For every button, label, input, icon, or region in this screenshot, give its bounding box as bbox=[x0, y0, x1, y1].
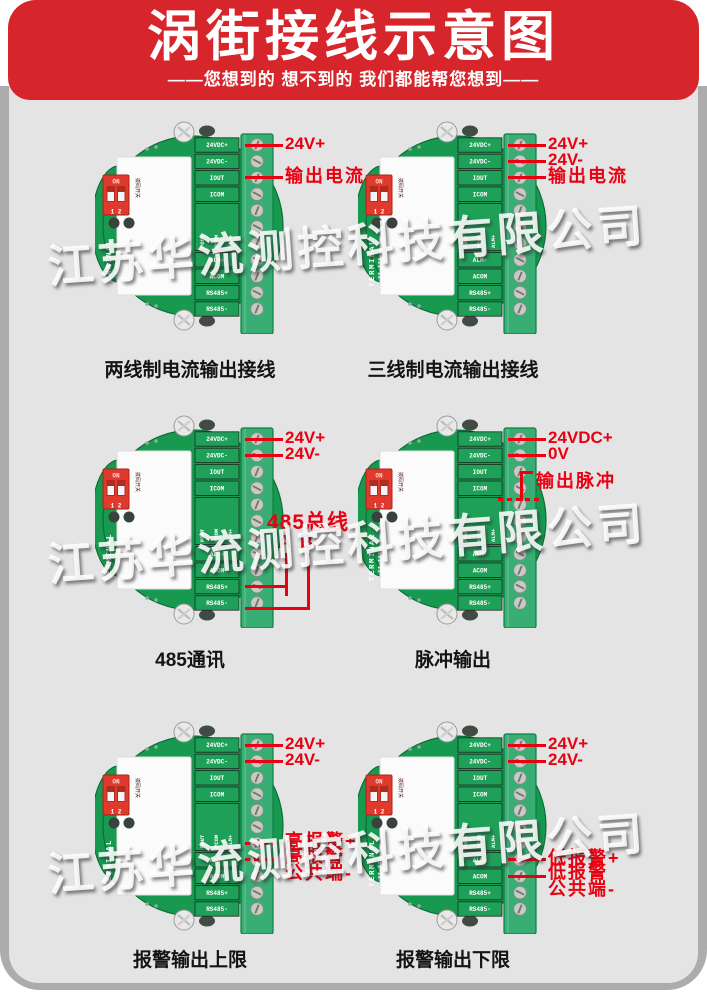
terminal-screw bbox=[251, 772, 264, 785]
terminal-screw bbox=[514, 821, 527, 834]
board-cell: ON1 2拨码开关TERMINALII-III24VDC+24VDC-IOUTI… bbox=[353, 408, 698, 714]
board-cell: ON1 2拨码开关TERMINALII-III24VDC+24VDC-IOUTI… bbox=[9, 714, 353, 990]
terminal-screw bbox=[514, 837, 527, 850]
mount-hole bbox=[387, 218, 398, 229]
pulse-label: 输出脉冲 bbox=[536, 473, 616, 490]
wire-label: 24V+ bbox=[285, 135, 325, 152]
terminal-label: IOUT bbox=[210, 775, 225, 782]
dip-on-label: ON bbox=[375, 779, 383, 786]
terminal-label: ALM- bbox=[210, 257, 224, 264]
terminal-screw bbox=[251, 804, 264, 817]
terminal-label: IOUT bbox=[473, 469, 488, 476]
wire-line bbox=[508, 176, 546, 179]
terminal-screw bbox=[251, 870, 264, 883]
page-title: 涡街接线示意图 bbox=[8, 6, 699, 68]
dip-positions-label: 1 2 bbox=[374, 809, 385, 816]
mount-hole bbox=[124, 818, 135, 829]
terminal-screw bbox=[251, 221, 264, 234]
terminal-label: ACOM bbox=[210, 567, 225, 574]
terminal-screw bbox=[514, 254, 527, 267]
terminal-label: ALM- bbox=[473, 257, 487, 264]
page: 涡街接线示意图 ——您想到的 想不到的 我们都能帮您想到—— ON1 2拨码开关… bbox=[0, 0, 707, 1000]
wire-line bbox=[508, 160, 546, 163]
wire-label: 输出电流 bbox=[548, 168, 628, 185]
terminal-screw bbox=[514, 597, 527, 610]
mount-screw bbox=[174, 604, 194, 624]
terminal-label: ICOM bbox=[210, 485, 225, 492]
mount-screw bbox=[174, 122, 194, 142]
terminal-label: 24VDC- bbox=[206, 453, 228, 460]
terminal-screw bbox=[251, 903, 264, 916]
terminal-screw bbox=[251, 237, 264, 250]
terminal-label: PCOM bbox=[476, 234, 483, 248]
terminal-label: ICOM bbox=[473, 191, 488, 198]
terminal-label: 24VDC- bbox=[206, 759, 228, 766]
wire-line bbox=[245, 842, 283, 845]
terminal-label: PCOM bbox=[213, 234, 220, 248]
terminal-screw bbox=[251, 254, 264, 267]
terminal-label: RS485- bbox=[469, 306, 491, 313]
mount-hole bbox=[109, 218, 120, 229]
terminal-screw bbox=[251, 155, 264, 168]
dip-side-label: 拨码开关 bbox=[397, 178, 404, 198]
bus-wire-b bbox=[307, 553, 310, 610]
mount-hole bbox=[124, 512, 135, 523]
terminal-screw bbox=[251, 886, 264, 899]
pcb-board: ON1 2拨码开关TERMINALII-III24VDC+24VDC-IOUTI… bbox=[95, 413, 285, 628]
terminal-label: ALM+ bbox=[227, 234, 234, 248]
pcb-board: ON1 2拨码开关TERMINALII-III24VDC+24VDC-IOUTI… bbox=[358, 719, 548, 934]
board-caption: 脉冲输出 bbox=[358, 645, 548, 672]
terminal-label: RS485+ bbox=[206, 290, 228, 297]
terminal-label: 24VDC+ bbox=[206, 742, 228, 749]
boards-grid: ON1 2拨码开关TERMINALII-III24VDC+24VDC-IOUTI… bbox=[9, 100, 698, 990]
terminal-screw bbox=[251, 531, 264, 544]
terminal-silk-sublabel: II-III bbox=[378, 551, 385, 573]
terminal-label: ALM+ bbox=[490, 234, 497, 248]
terminal-screw bbox=[251, 548, 264, 561]
solder-pad bbox=[199, 420, 215, 431]
board-caption: 报警输出下限 bbox=[358, 945, 548, 972]
terminal-label: POUT bbox=[462, 528, 469, 542]
dip-switch: ON1 2 bbox=[103, 175, 129, 216]
pcb-board-graphic: ON1 2拨码开关TERMINALII-III24VDC+24VDC-IOUTI… bbox=[95, 119, 285, 334]
terminal-label: IOUT bbox=[473, 775, 488, 782]
terminal-label: 24VDC+ bbox=[206, 142, 228, 149]
terminal-screw bbox=[251, 788, 264, 801]
dip-on-label: ON bbox=[112, 473, 120, 480]
dip-side-label: 拨码开关 bbox=[397, 472, 404, 492]
mount-hole bbox=[109, 818, 120, 829]
terminal-silk-sublabel: II-III bbox=[115, 257, 122, 279]
solder-pad bbox=[199, 610, 215, 621]
dip-side-label: 拨码开关 bbox=[134, 472, 141, 492]
terminal-label: ALM- bbox=[210, 857, 224, 864]
mount-screw bbox=[174, 310, 194, 330]
mount-screw bbox=[174, 722, 194, 742]
terminal-silk-sublabel: II-III bbox=[115, 857, 122, 879]
terminal-screw bbox=[251, 286, 264, 299]
terminal-silk-sublabel: II-III bbox=[378, 857, 385, 879]
terminal-label: POUT bbox=[199, 834, 206, 848]
wire-line bbox=[508, 454, 546, 457]
solder-pad bbox=[199, 316, 215, 327]
bus-wire-a-label: A bbox=[278, 534, 293, 551]
dip-switch: ON1 2 bbox=[366, 175, 392, 216]
terminal-silk-sublabel: II-III bbox=[115, 551, 122, 573]
bus-wire-a-connector bbox=[245, 585, 285, 588]
terminal-label: ALM+ bbox=[490, 834, 497, 848]
wire-label-line2: 公共端- bbox=[548, 881, 616, 898]
header-banner: 涡街接线示意图 ——您想到的 想不到的 我们都能帮您想到—— bbox=[8, 0, 699, 100]
terminal-screw bbox=[251, 303, 264, 316]
terminal-label: ACOM bbox=[210, 273, 225, 280]
terminal-screw bbox=[514, 188, 527, 201]
dip-switch: ON1 2 bbox=[366, 775, 392, 816]
wire-line bbox=[508, 438, 546, 441]
board-caption: 报警输出上限 bbox=[95, 945, 285, 972]
dip-positions-label: 1 2 bbox=[111, 209, 122, 216]
board-caption: 两线制电流输出接线 bbox=[95, 355, 285, 382]
terminal-label: ALM+ bbox=[227, 528, 234, 542]
terminal-label: 24VDC- bbox=[206, 159, 228, 166]
terminal-label: ICOM bbox=[473, 791, 488, 798]
pcb-board: ON1 2拨码开关TERMINALII-III24VDC+24VDC-IOUTI… bbox=[95, 119, 285, 334]
terminal-label: ACOM bbox=[473, 567, 488, 574]
bus-title: 485总线 bbox=[267, 512, 349, 533]
page-subtitle: ——您想到的 想不到的 我们都能帮您想到—— bbox=[8, 70, 699, 90]
terminal-label: RS485+ bbox=[469, 290, 491, 297]
terminal-label: ALM+ bbox=[490, 528, 497, 542]
terminal-screw bbox=[514, 548, 527, 561]
terminal-label: ALM- bbox=[473, 857, 487, 864]
terminal-screw bbox=[251, 204, 264, 217]
mount-hole bbox=[387, 512, 398, 523]
terminal-screw bbox=[514, 204, 527, 217]
wire-line bbox=[245, 438, 283, 441]
terminal-label: ALM- bbox=[210, 551, 224, 558]
wire-line bbox=[508, 760, 546, 763]
wire-line bbox=[245, 744, 283, 747]
wire-line bbox=[245, 858, 283, 861]
dip-on-label: ON bbox=[112, 179, 120, 186]
mount-screw bbox=[437, 604, 457, 624]
mount-screw bbox=[437, 122, 457, 142]
dip-side-label: 拨码开关 bbox=[397, 778, 404, 798]
solder-pad bbox=[462, 126, 478, 137]
terminal-screw bbox=[251, 270, 264, 283]
dip-side-label: 拨码开关 bbox=[134, 178, 141, 198]
pcb-board-graphic: ON1 2拨码开关TERMINALII-III24VDC+24VDC-IOUTI… bbox=[358, 119, 548, 334]
terminal-screw bbox=[514, 303, 527, 316]
terminal-silk-label: TERMINAL bbox=[106, 533, 114, 581]
dip-on-label: ON bbox=[375, 179, 383, 186]
wire-line bbox=[508, 144, 546, 147]
terminal-label: RS485- bbox=[206, 600, 228, 607]
terminal-screw bbox=[514, 788, 527, 801]
terminal-label: POUT bbox=[462, 834, 469, 848]
dip-positions-label: 1 2 bbox=[374, 503, 385, 510]
terminal-screw bbox=[251, 515, 264, 528]
terminal-label: RS485+ bbox=[206, 584, 228, 591]
pulse-bracket-vertical bbox=[520, 471, 523, 501]
wire-label: 输出电流 bbox=[285, 168, 365, 185]
terminal-label: IOUT bbox=[210, 175, 225, 182]
terminal-silk-label: TERMINAL bbox=[369, 839, 377, 887]
solder-pad bbox=[199, 916, 215, 927]
terminal-label: RS485- bbox=[469, 906, 491, 913]
board-cell: ON1 2拨码开关TERMINALII-III24VDC+24VDC-IOUTI… bbox=[353, 100, 698, 408]
wire-label: 24V- bbox=[285, 445, 320, 462]
terminal-screw bbox=[251, 564, 264, 577]
board-caption: 三线制电流输出接线 bbox=[358, 355, 548, 382]
terminal-label: POUT bbox=[462, 234, 469, 248]
terminal-screw bbox=[514, 580, 527, 593]
terminal-label: 24VDC- bbox=[469, 453, 491, 460]
wire-label: 高报警公共端- bbox=[285, 848, 353, 882]
solder-pad bbox=[462, 420, 478, 431]
mount-screw bbox=[437, 910, 457, 930]
wire-label-line2: 公共端- bbox=[285, 865, 353, 882]
board-cell: ON1 2拨码开关TERMINALII-III24VDC+24VDC-IOUTI… bbox=[9, 408, 353, 714]
terminal-silk-label: TERMINAL bbox=[369, 533, 377, 581]
terminal-label: ICOM bbox=[210, 791, 225, 798]
terminal-label: POUT bbox=[199, 528, 206, 542]
terminal-label: PCOM bbox=[213, 528, 220, 542]
pcb-board-graphic: ON1 2拨码开关TERMINALII-III24VDC+24VDC-IOUTI… bbox=[95, 413, 285, 628]
terminal-label: 24VDC+ bbox=[469, 742, 491, 749]
solder-pad bbox=[462, 916, 478, 927]
mount-screw bbox=[174, 416, 194, 436]
terminal-screw bbox=[251, 821, 264, 834]
dip-switch: ON1 2 bbox=[103, 775, 129, 816]
wire-label: 24V- bbox=[548, 751, 583, 768]
terminal-screw bbox=[514, 804, 527, 817]
terminal-label: RS485+ bbox=[206, 890, 228, 897]
terminal-screw bbox=[514, 903, 527, 916]
terminal-label: RS485- bbox=[206, 306, 228, 313]
wire-line bbox=[508, 875, 546, 878]
bus-wire-b-connector bbox=[245, 607, 307, 610]
terminal-screw bbox=[514, 515, 527, 528]
terminal-label: RS485+ bbox=[469, 584, 491, 591]
wire-label: 低报警公共端- bbox=[548, 864, 616, 898]
solder-pad bbox=[462, 726, 478, 737]
mount-hole bbox=[372, 512, 383, 523]
dip-positions-label: 1 2 bbox=[111, 503, 122, 510]
terminal-label: PCOM bbox=[213, 834, 220, 848]
pcb-board-graphic: ON1 2拨码开关TERMINALII-III24VDC+24VDC-IOUTI… bbox=[95, 719, 285, 934]
terminal-screw bbox=[251, 466, 264, 479]
wire-line bbox=[508, 858, 546, 861]
terminal-label: ICOM bbox=[473, 485, 488, 492]
dip-positions-label: 1 2 bbox=[111, 809, 122, 816]
wire-line bbox=[245, 144, 283, 147]
board-cell: ON1 2拨码开关TERMINALII-III24VDC+24VDC-IOUTI… bbox=[353, 714, 698, 990]
solder-pad bbox=[199, 126, 215, 137]
dip-side-label: 拨码开关 bbox=[134, 778, 141, 798]
terminal-label: 24VDC- bbox=[469, 159, 491, 166]
pulse-wire-dashed bbox=[498, 498, 540, 501]
terminal-screw bbox=[514, 886, 527, 899]
pulse-bracket-top bbox=[520, 471, 533, 474]
terminal-screw bbox=[514, 221, 527, 234]
terminal-label: 24VDC+ bbox=[469, 436, 491, 443]
board-caption: 485通讯 bbox=[95, 645, 285, 672]
wire-label: 0V bbox=[548, 445, 569, 462]
terminal-label: RS485- bbox=[469, 600, 491, 607]
bus-wire-a bbox=[285, 553, 288, 596]
terminal-silk-label: TERMINAL bbox=[106, 839, 114, 887]
terminal-label: PCOM bbox=[476, 528, 483, 542]
terminal-label: 24VDC- bbox=[469, 759, 491, 766]
wire-line bbox=[245, 454, 283, 457]
pcb-board: ON1 2拨码开关TERMINALII-III24VDC+24VDC-IOUTI… bbox=[95, 719, 285, 934]
mount-hole bbox=[372, 818, 383, 829]
dip-positions-label: 1 2 bbox=[374, 209, 385, 216]
terminal-screw bbox=[514, 772, 527, 785]
terminal-screw bbox=[514, 286, 527, 299]
solder-pad bbox=[462, 316, 478, 327]
terminal-silk-label: TERMINAL bbox=[369, 239, 377, 287]
mount-screw bbox=[437, 416, 457, 436]
wire-line bbox=[508, 744, 546, 747]
terminal-label: ACOM bbox=[473, 273, 488, 280]
wire-label: 24V- bbox=[285, 751, 320, 768]
board-cell: ON1 2拨码开关TERMINALII-III24VDC+24VDC-IOUTI… bbox=[9, 100, 353, 408]
terminal-label: PCOM bbox=[476, 834, 483, 848]
pcb-board-graphic: ON1 2拨码开关TERMINALII-III24VDC+24VDC-IOUTI… bbox=[358, 413, 548, 628]
terminal-label: ACOM bbox=[210, 873, 225, 880]
mount-hole bbox=[372, 218, 383, 229]
terminal-label: ACOM bbox=[473, 873, 488, 880]
solder-pad bbox=[462, 610, 478, 621]
mount-hole bbox=[124, 218, 135, 229]
terminal-screw bbox=[514, 270, 527, 283]
dip-on-label: ON bbox=[112, 779, 120, 786]
terminal-screw bbox=[514, 531, 527, 544]
solder-pad bbox=[199, 726, 215, 737]
terminal-label: 24VDC+ bbox=[206, 436, 228, 443]
pcb-board-graphic: ON1 2拨码开关TERMINALII-III24VDC+24VDC-IOUTI… bbox=[358, 719, 548, 934]
mount-screw bbox=[437, 310, 457, 330]
mount-screw bbox=[437, 722, 457, 742]
terminal-label: ICOM bbox=[210, 191, 225, 198]
bus-wire-b-label: B bbox=[300, 534, 315, 551]
dip-switch: ON1 2 bbox=[366, 469, 392, 510]
dip-on-label: ON bbox=[375, 473, 383, 480]
pcb-board: ON1 2拨码开关TERMINALII-III24VDC+24VDC-IOUTI… bbox=[358, 413, 548, 628]
terminal-silk-label: TERMINAL bbox=[106, 239, 114, 287]
terminal-screw bbox=[251, 188, 264, 201]
mount-hole bbox=[387, 818, 398, 829]
terminal-label: ALM+ bbox=[227, 834, 234, 848]
terminal-silk-sublabel: II-III bbox=[378, 257, 385, 279]
terminal-label: RS485- bbox=[206, 906, 228, 913]
terminal-label: POUT bbox=[199, 234, 206, 248]
dip-switch: ON1 2 bbox=[103, 469, 129, 510]
terminal-screw bbox=[251, 498, 264, 511]
terminal-label: ALM- bbox=[473, 551, 487, 558]
wire-line bbox=[245, 760, 283, 763]
terminal-label: IOUT bbox=[473, 175, 488, 182]
terminal-screw bbox=[251, 482, 264, 495]
terminal-label: RS485+ bbox=[469, 890, 491, 897]
terminal-label: IOUT bbox=[210, 469, 225, 476]
terminal-screw bbox=[514, 237, 527, 250]
mount-screw bbox=[174, 910, 194, 930]
pcb-board: ON1 2拨码开关TERMINALII-III24VDC+24VDC-IOUTI… bbox=[358, 119, 548, 334]
terminal-label: 24VDC+ bbox=[469, 142, 491, 149]
mount-hole bbox=[109, 512, 120, 523]
wire-line bbox=[245, 176, 283, 179]
terminal-screw bbox=[514, 564, 527, 577]
